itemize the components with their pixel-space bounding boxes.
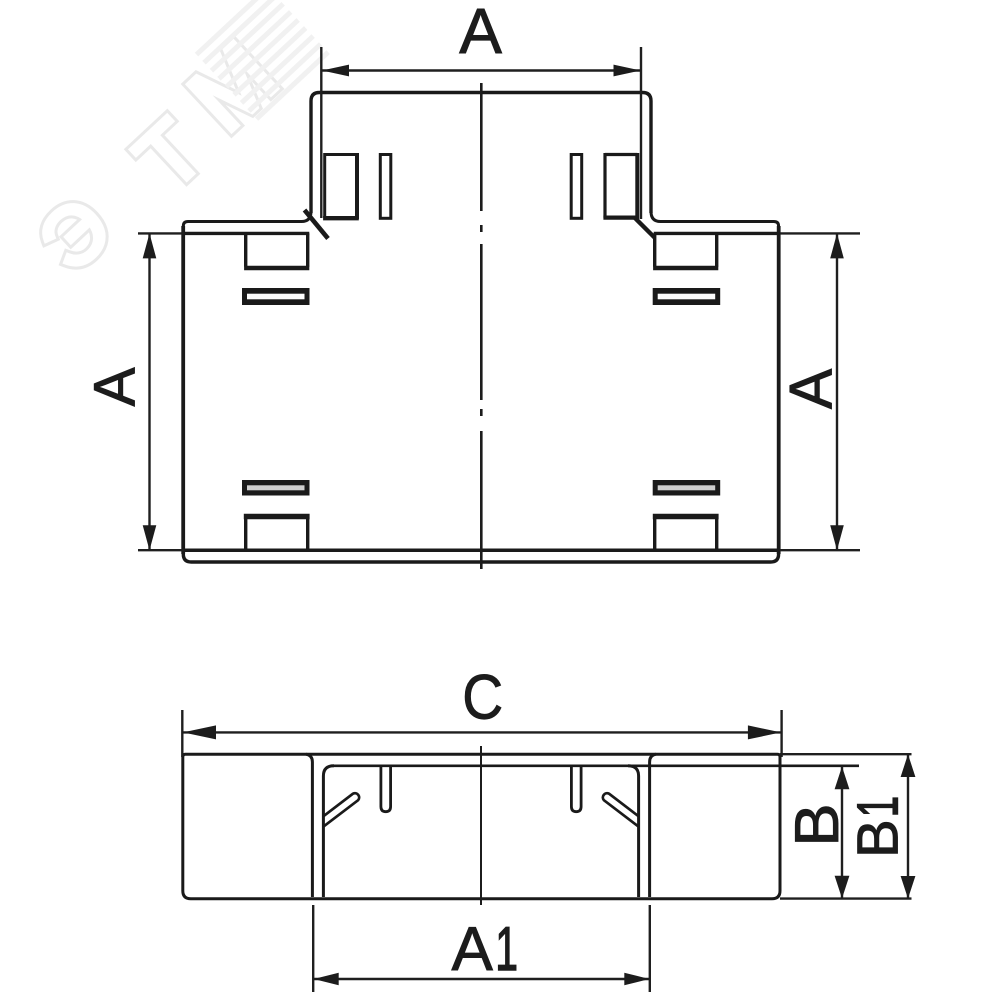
svg-text:A: A: [83, 367, 148, 406]
svg-text:C: C: [462, 663, 503, 733]
svg-text:1: 1: [495, 915, 518, 984]
svg-text:B: B: [846, 819, 911, 858]
svg-text:A: A: [776, 368, 844, 409]
svg-text:B: B: [783, 803, 852, 846]
svg-text:A: A: [452, 915, 494, 984]
svg-text:Э: Э: [22, 182, 127, 289]
svg-text:Т: Т: [118, 102, 222, 208]
svg-text:A: A: [459, 0, 502, 67]
svg-text:1: 1: [846, 796, 911, 817]
